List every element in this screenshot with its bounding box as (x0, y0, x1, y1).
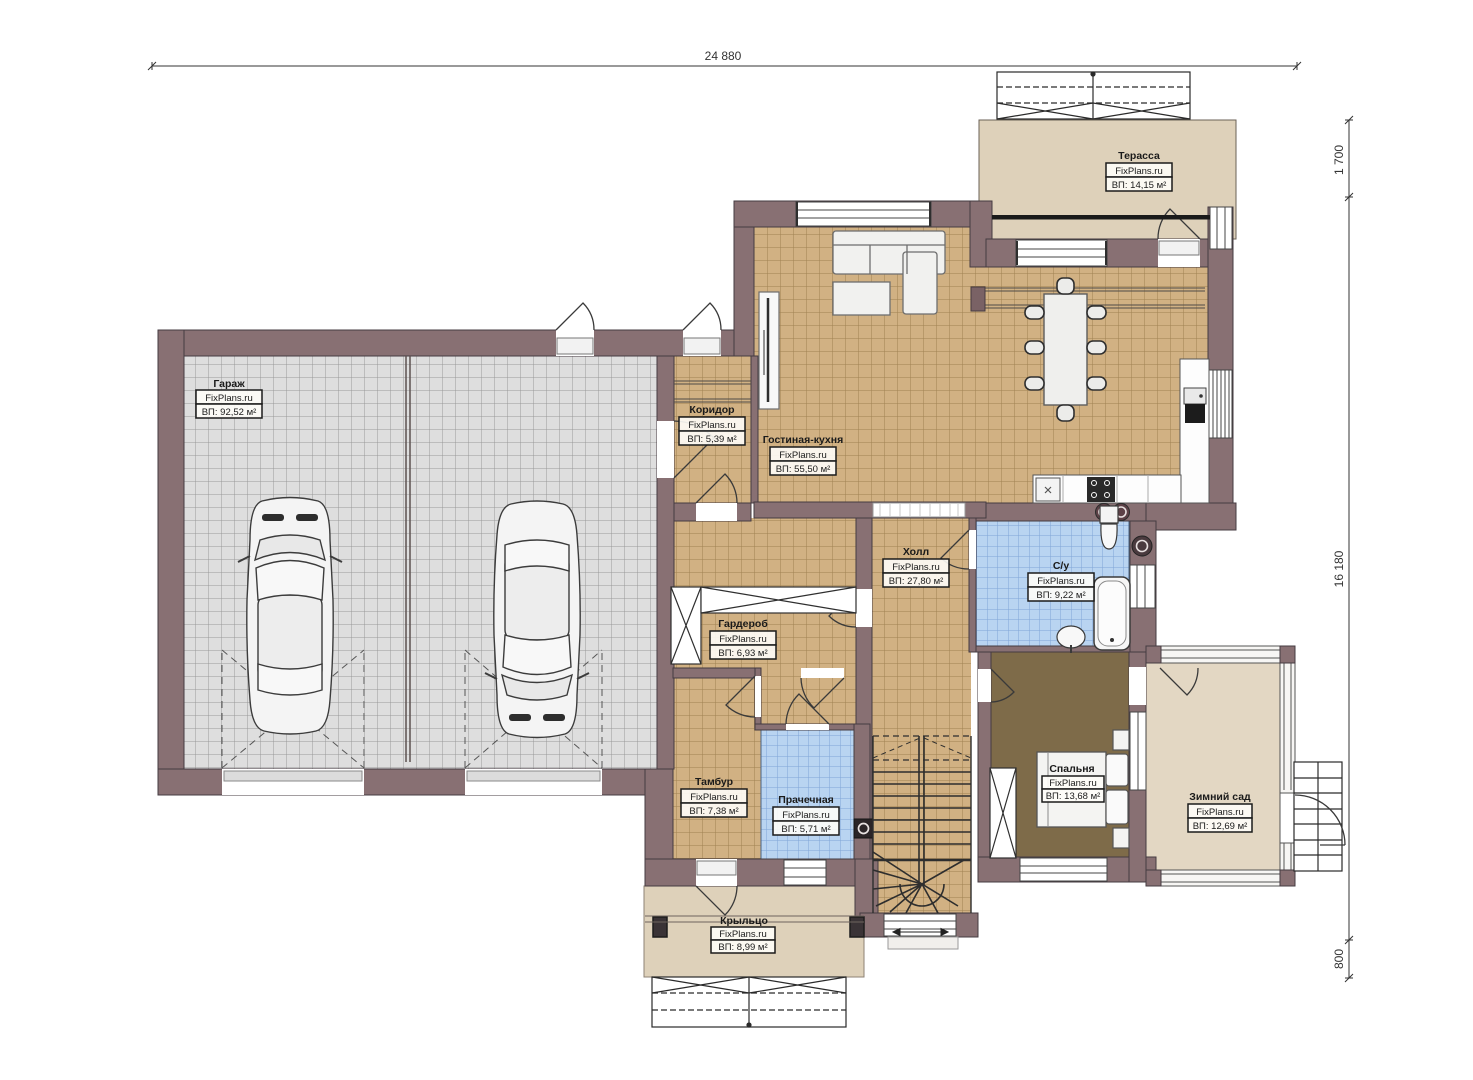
svg-text:ВП: 13,68 м²: ВП: 13,68 м² (1046, 791, 1101, 802)
svg-text:ВП: 92,52 м²: ВП: 92,52 м² (202, 407, 257, 418)
svg-text:ВП: 27,80 м²: ВП: 27,80 м² (889, 576, 944, 587)
svg-text:FixPlans.ru: FixPlans.ru (1196, 807, 1244, 818)
svg-text:FixPlans.ru: FixPlans.ru (1037, 576, 1085, 587)
svg-text:ВП: 55,50 м²: ВП: 55,50 м² (776, 464, 831, 475)
svg-text:FixPlans.ru: FixPlans.ru (719, 929, 767, 940)
svg-text:ВП: 7,38 м²: ВП: 7,38 м² (689, 806, 738, 817)
svg-text:FixPlans.ru: FixPlans.ru (782, 810, 830, 821)
svg-text:FixPlans.ru: FixPlans.ru (779, 450, 827, 461)
svg-text:Крыльцо: Крыльцо (720, 915, 768, 927)
svg-text:Прачечная: Прачечная (778, 794, 834, 806)
svg-text:FixPlans.ru: FixPlans.ru (719, 634, 767, 645)
svg-text:ВП: 9,22 м²: ВП: 9,22 м² (1036, 590, 1085, 601)
svg-text:ВП: 12,69 м²: ВП: 12,69 м² (1193, 821, 1248, 832)
svg-text:ВП: 6,93 м²: ВП: 6,93 м² (718, 648, 767, 659)
svg-text:Терасса: Терасса (1118, 150, 1160, 162)
svg-text:800: 800 (1332, 949, 1346, 969)
svg-text:Зимний сад: Зимний сад (1189, 791, 1251, 803)
svg-text:16 180: 16 180 (1332, 550, 1346, 587)
svg-text:FixPlans.ru: FixPlans.ru (892, 562, 940, 573)
svg-text:Гараж: Гараж (213, 378, 245, 390)
svg-text:ВП: 8,99 м²: ВП: 8,99 м² (718, 942, 767, 953)
svg-text:FixPlans.ru: FixPlans.ru (690, 792, 738, 803)
svg-text:С/у: С/у (1053, 560, 1070, 572)
svg-text:ВП: 5,71 м²: ВП: 5,71 м² (781, 824, 830, 835)
svg-text:Холл: Холл (903, 546, 929, 558)
svg-text:FixPlans.ru: FixPlans.ru (688, 420, 736, 431)
svg-text:ВП: 14,15 м²: ВП: 14,15 м² (1112, 180, 1167, 191)
svg-text:Тамбур: Тамбур (695, 776, 733, 788)
svg-text:24 880: 24 880 (705, 49, 742, 63)
svg-text:FixPlans.ru: FixPlans.ru (205, 393, 253, 404)
svg-text:FixPlans.ru: FixPlans.ru (1115, 166, 1163, 177)
svg-text:Гостиная-кухня: Гостиная-кухня (763, 434, 843, 446)
svg-text:ВП: 5,39 м²: ВП: 5,39 м² (687, 434, 736, 445)
svg-text:Коридор: Коридор (689, 404, 734, 416)
svg-text:Гардероб: Гардероб (718, 618, 768, 630)
svg-text:1 700: 1 700 (1332, 145, 1346, 175)
svg-text:FixPlans.ru: FixPlans.ru (1049, 778, 1097, 789)
svg-text:Спальня: Спальня (1049, 763, 1094, 775)
